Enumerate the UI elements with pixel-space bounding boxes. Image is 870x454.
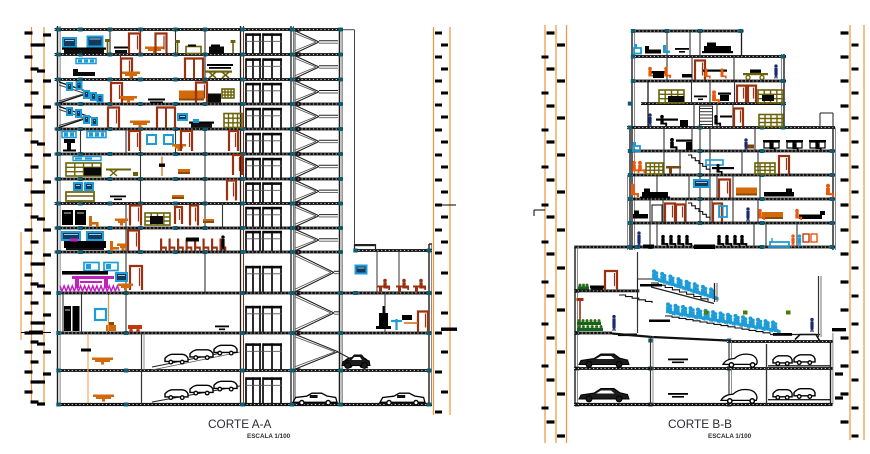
svg-text:ESCALA 1/100: ESCALA 1/100	[247, 433, 291, 440]
svg-text:CORTE B-B: CORTE B-B	[668, 417, 732, 431]
svg-text:ESCALA 1/100: ESCALA 1/100	[708, 433, 752, 440]
svg-text:CORTE A-A: CORTE A-A	[208, 417, 271, 431]
